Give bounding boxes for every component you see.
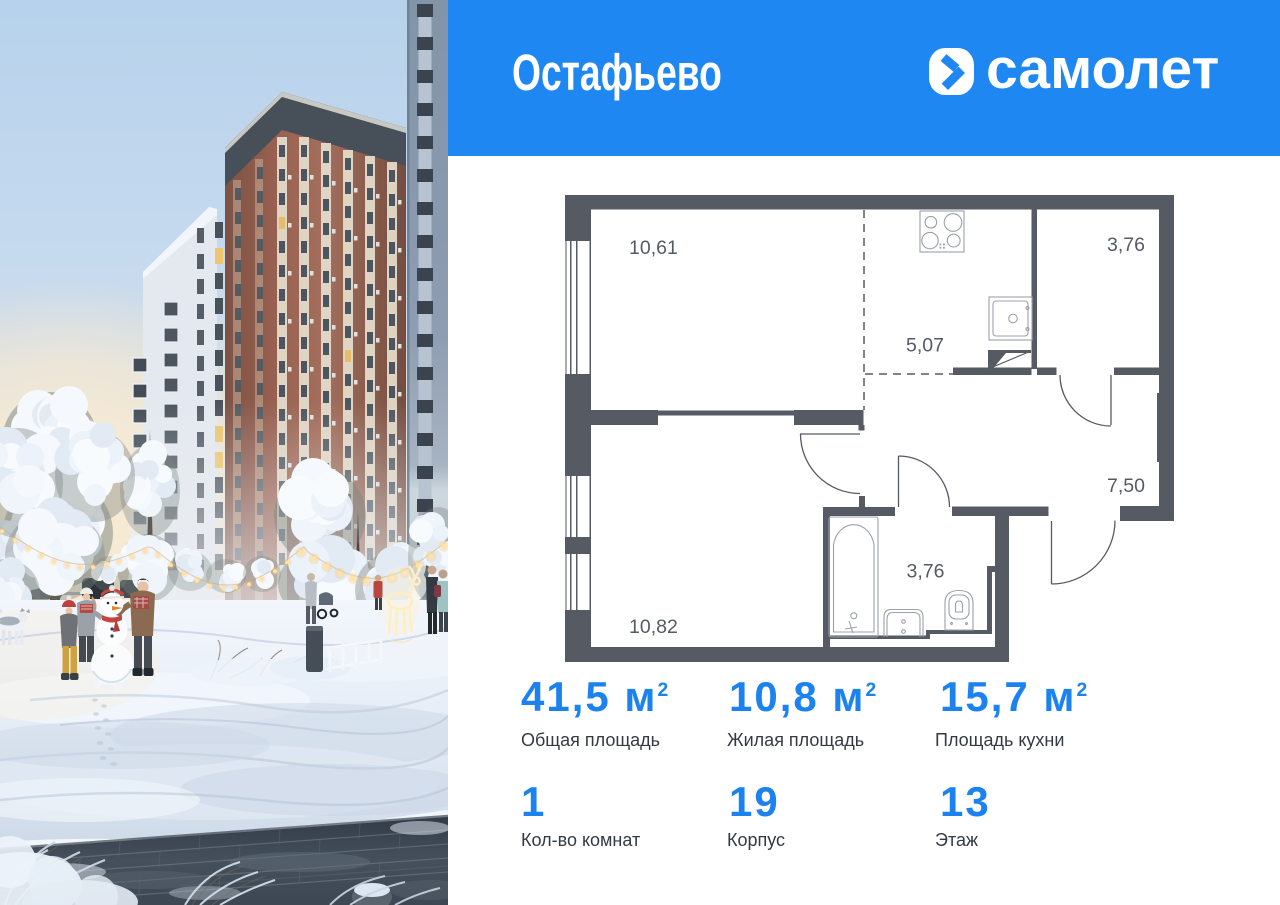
svg-text:3,76: 3,76 (907, 561, 945, 583)
svg-text:7,50: 7,50 (1107, 475, 1145, 497)
svg-text:3,76: 3,76 (1107, 234, 1145, 256)
svg-text:10,82: 10,82 (629, 616, 678, 638)
svg-text:5,07: 5,07 (906, 335, 944, 357)
svg-text:10,61: 10,61 (629, 237, 678, 259)
